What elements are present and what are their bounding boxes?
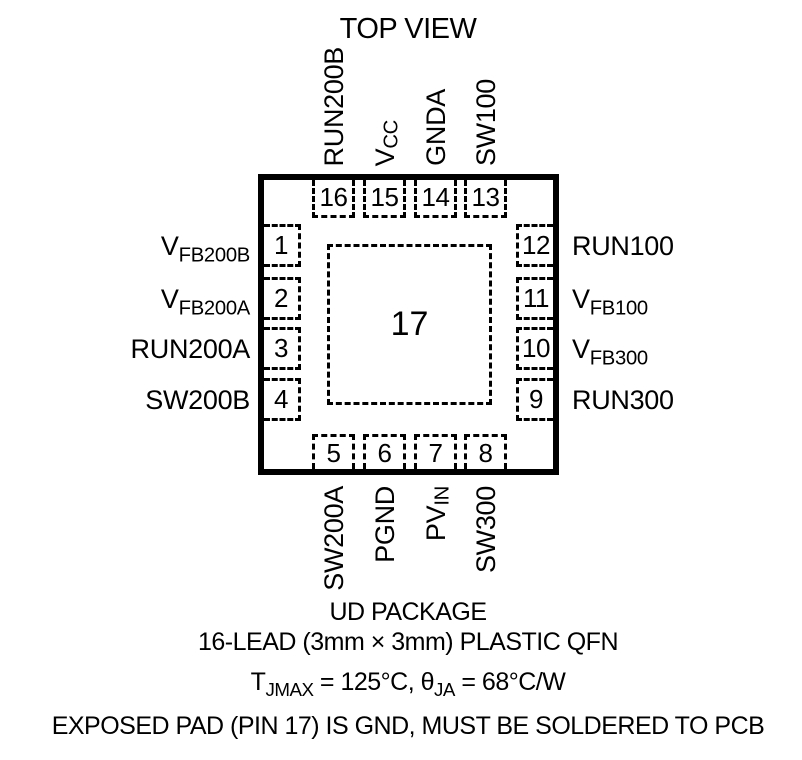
package-outline: 16 15 14 13 1 2 3 4 12 11 10 9 5 6 7 8 1… [258, 174, 559, 475]
pin-label-text: RUN100 [572, 231, 674, 261]
pin-7-label: PVIN [421, 486, 451, 541]
thermal-text: T [251, 668, 266, 696]
thermal-text: = 125°C, θ [313, 668, 434, 696]
pin-13-label: SW100 [471, 79, 501, 166]
pin-label-text: SW100 [471, 79, 501, 166]
pin-10-label: VFB300 [572, 334, 648, 364]
pin-11-pad: 11 [516, 277, 553, 320]
pin-10-pad: 10 [516, 327, 553, 370]
footer-package-desc: 16-LEAD (3mm × 3mm) PLASTIC QFN [7, 627, 802, 657]
footer-package-name: UD PACKAGE [7, 597, 802, 627]
pin-8-pad: 8 [464, 434, 507, 469]
pin-label-text: V [161, 231, 179, 261]
pin-4-pad: 4 [264, 378, 301, 421]
pin-3-pad: 3 [264, 327, 301, 370]
pin-8-label: SW300 [471, 486, 501, 573]
pin-number: 13 [472, 182, 500, 213]
pin-2-pad: 2 [264, 277, 301, 320]
pin-6-pad: 6 [363, 434, 406, 469]
pin-12-label: RUN100 [572, 231, 674, 261]
pin-number: 1 [274, 230, 288, 261]
pin-number: 16 [320, 182, 348, 213]
pin-number: 15 [371, 182, 399, 213]
pin-15-pad: 15 [363, 180, 406, 218]
pin-12-pad: 12 [516, 224, 553, 267]
pin-label-text: V [370, 148, 400, 166]
pin-label-text: V [572, 334, 590, 364]
exposed-pad: 17 [327, 244, 492, 405]
pin-label-text: SW200A [319, 486, 349, 591]
pin-4-label: SW200B [145, 385, 250, 415]
pin-11-label: VFB100 [572, 284, 648, 314]
pin-number: 5 [327, 438, 341, 469]
pin-number: 10 [522, 333, 550, 364]
pin-number: 4 [274, 384, 288, 415]
pin-number: 6 [378, 438, 392, 469]
pin-number: 17 [391, 305, 429, 344]
pin-label-subscript: FB100 [590, 297, 648, 319]
pinout-diagram: TOP VIEW RUN200B VCC GNDA SW100 VFB200B … [0, 0, 802, 760]
pin-label-text: RUN200B [319, 47, 349, 166]
pin-1-pad: 1 [264, 224, 301, 267]
pin-number: 3 [274, 333, 288, 364]
pin-5-pad: 5 [312, 434, 355, 469]
pin-number: 2 [274, 283, 288, 314]
pin-5-label: SW200A [319, 486, 349, 591]
pin-3-label: RUN200A [131, 334, 250, 364]
footer-thermal-line: TJMAX = 125°C, θJA = 68°C/W [7, 667, 802, 697]
pin-1-label: VFB200B [161, 231, 250, 261]
pin-label-text: V [572, 284, 590, 314]
pin-15-label: VCC [370, 120, 400, 166]
footer-exposed-pad-note: EXPOSED PAD (PIN 17) IS GND, MUST BE SOL… [7, 711, 802, 741]
pin-14-label: GNDA [421, 89, 451, 166]
pin-label-text: SW300 [471, 486, 501, 573]
pin-label-text: PGND [370, 486, 400, 563]
pin-label-text: SW200B [145, 385, 250, 415]
pin-label-text: PV [421, 506, 451, 541]
pin-6-label: PGND [370, 486, 400, 563]
pin-2-label: VFB200A [161, 284, 250, 314]
pin-16-pad: 16 [312, 180, 355, 218]
pin-number: 11 [523, 283, 549, 314]
pin-label-text: RUN200A [131, 334, 250, 364]
pin-number: 9 [529, 384, 543, 415]
pin-number: 7 [429, 438, 443, 469]
pin-number: 14 [422, 182, 450, 213]
pin-14-pad: 14 [414, 180, 457, 218]
thermal-text: = 68°C/W [455, 668, 565, 696]
pin-label-text: V [161, 284, 179, 314]
pin-label-subscript: FB200B [179, 244, 250, 266]
pin-9-label: RUN300 [572, 385, 674, 415]
pin-label-subscript: FB300 [590, 347, 648, 369]
diagram-title: TOP VIEW [7, 12, 802, 46]
pin-label-subscript: FB200A [179, 297, 250, 319]
pin-9-pad: 9 [516, 378, 553, 421]
pin-number: 12 [522, 230, 550, 261]
pin-16-label: RUN200B [319, 47, 349, 166]
pin-number: 8 [479, 438, 493, 469]
pin-label-text: RUN300 [572, 385, 674, 415]
pin-13-pad: 13 [464, 180, 507, 218]
pin-label-subscript: CC [380, 120, 402, 149]
pin-label-subscript: IN [431, 486, 453, 506]
pin-label-text: GNDA [421, 89, 451, 166]
pin-7-pad: 7 [414, 434, 457, 469]
thermal-subscript: JA [434, 679, 455, 700]
thermal-subscript: JMAX [265, 679, 313, 700]
